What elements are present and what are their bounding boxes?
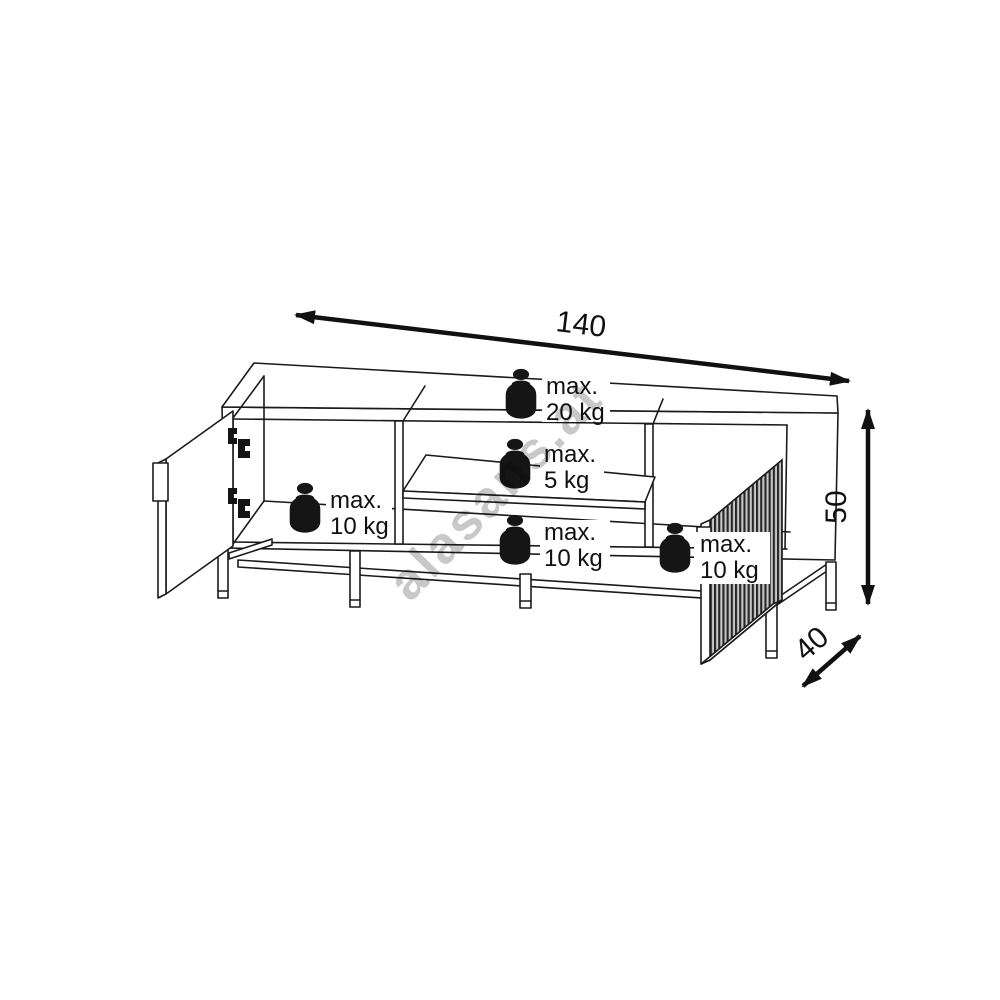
- tv-stand-dimension-diagram: max. 20 kg max. 5 kg max. 10 kg max. 10 …: [0, 0, 1000, 1000]
- weight-label-line2: 10 kg: [330, 513, 389, 540]
- weight-label-line1: max.: [700, 531, 752, 558]
- depth-dimension-label: 40: [788, 620, 835, 667]
- weight-label-line1: max.: [544, 519, 596, 546]
- weight-marker-left: max. 10 kg: [290, 483, 392, 540]
- width-dimension-label: 140: [554, 305, 608, 344]
- weight-marker-right: max. 10 kg: [660, 523, 770, 584]
- height-dimension-label: 50: [820, 490, 853, 523]
- leg-center: [520, 574, 531, 608]
- weight-label-line2: 10 kg: [700, 557, 759, 584]
- left-door-handle: [153, 463, 168, 501]
- weight-label-line2: 10 kg: [544, 545, 603, 572]
- right-side-rail: [777, 564, 827, 605]
- weight-marker-middle-lower: max. 10 kg: [500, 515, 610, 572]
- diagram-canvas: max. 20 kg max. 5 kg max. 10 kg max. 10 …: [0, 0, 1000, 1000]
- weight-label-line1: max.: [330, 487, 382, 514]
- divider-left: [395, 421, 403, 544]
- leg-mid-left: [350, 551, 360, 607]
